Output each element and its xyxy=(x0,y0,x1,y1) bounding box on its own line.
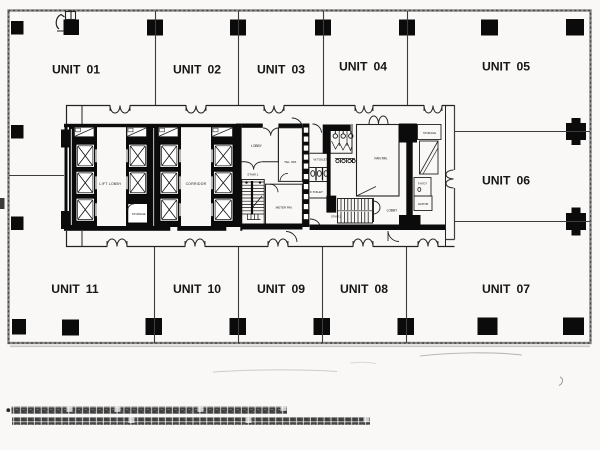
svg-text:UNIT 03: UNIT 03 xyxy=(257,63,305,77)
svg-text:JANITOR: JANITOR xyxy=(418,203,429,206)
svg-text:F.HYDT: F.HYDT xyxy=(418,183,427,186)
svg-text:LOBBY: LOBBY xyxy=(251,144,263,148)
svg-text:UNIT 02: UNIT 02 xyxy=(173,63,221,77)
svg-text:FAN RM.: FAN RM. xyxy=(375,157,388,161)
svg-text:STORAGE: STORAGE xyxy=(423,131,436,135)
svg-text:UNIT 05: UNIT 05 xyxy=(482,60,530,74)
svg-text:F.TOILET: F.TOILET xyxy=(310,190,323,194)
svg-text:UNIT 01: UNIT 01 xyxy=(52,63,100,77)
svg-text:UNIT 07: UNIT 07 xyxy=(482,282,530,296)
svg-text:TEL. RM.: TEL. RM. xyxy=(284,160,297,164)
svg-text:UNIT 08: UNIT 08 xyxy=(340,282,388,296)
svg-text:UNIT 04: UNIT 04 xyxy=(339,60,387,74)
svg-text:LOBBY: LOBBY xyxy=(387,209,399,213)
svg-text:UNIT 06: UNIT 06 xyxy=(482,174,530,188)
svg-text:UNIT 10: UNIT 10 xyxy=(173,282,221,296)
svg-text:UNIT 09: UNIT 09 xyxy=(257,282,305,296)
svg-text:UNIT 11: UNIT 11 xyxy=(51,282,99,296)
svg-text:CORRIDOR: CORRIDOR xyxy=(186,182,207,186)
svg-text:STAIR 2: STAIR 2 xyxy=(331,215,341,219)
svg-text:STAIR 1: STAIR 1 xyxy=(247,173,258,177)
svg-text:STORAGE: STORAGE xyxy=(132,212,146,216)
svg-text:LIFT LOBBY: LIFT LOBBY xyxy=(99,182,122,186)
svg-text:METER RM.: METER RM. xyxy=(276,206,293,210)
svg-text:W.TOILET: W.TOILET xyxy=(314,158,328,162)
